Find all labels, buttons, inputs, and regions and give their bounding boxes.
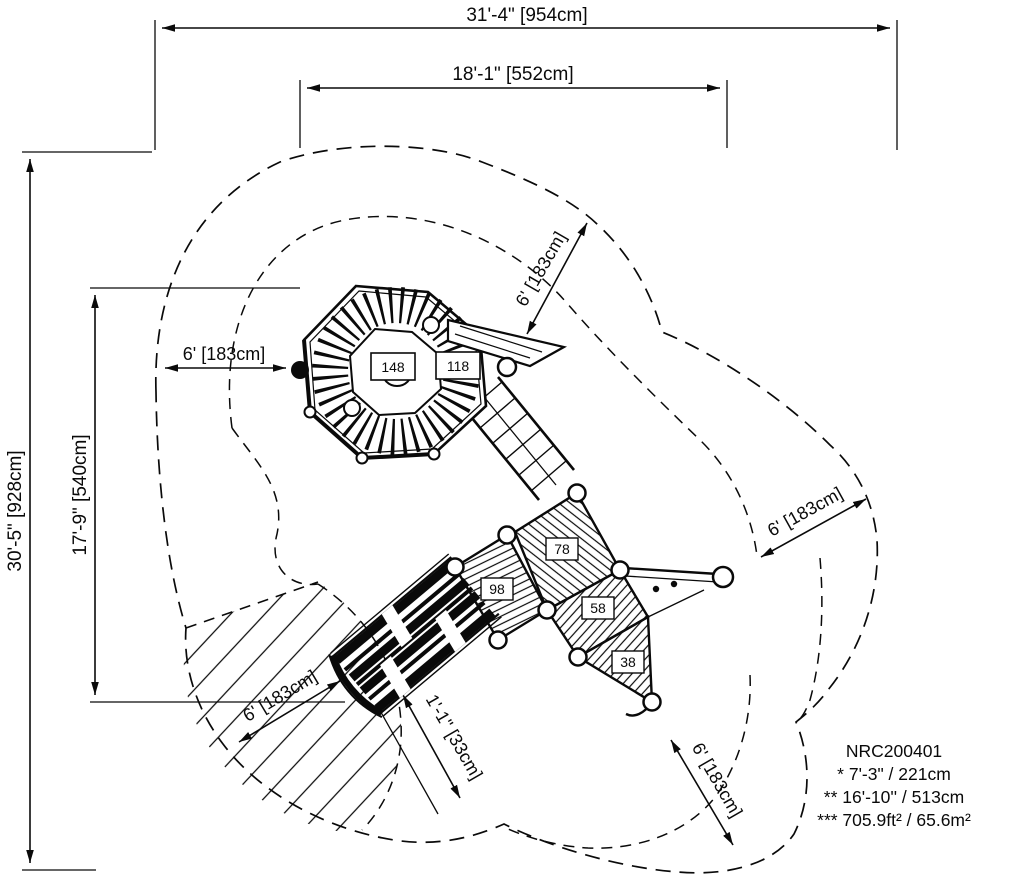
info-block: NRC200401 * 7'-3" / 221cm ** 16'-10'' / … — [776, 740, 1012, 832]
svg-text:78: 78 — [554, 541, 570, 557]
svg-text:98: 98 — [489, 581, 505, 597]
dimension-use-zone-bottom: 6' [183cm] — [671, 739, 746, 845]
overall-width-label: 31'-4" [954cm] — [466, 5, 587, 26]
dimension-use-zone-right: 6' [183cm] — [761, 483, 866, 557]
use-zone-left-label: 6' [183cm] — [183, 344, 265, 364]
use-zone-bottom-label: 6' [183cm] — [688, 739, 747, 820]
inner-zone-arc-right — [795, 558, 822, 722]
playground-plan-drawing: 31'-4" [954cm] 18'-1" [552cm] 30'-5" [92… — [0, 0, 1024, 884]
inner-zone-arc-left — [232, 428, 318, 585]
svg-text:148: 148 — [381, 359, 405, 375]
note-overall-height: ** 16'-10'' / 513cm — [776, 786, 1012, 809]
dimension-slide-exit: 1'-1" [33cm] — [403, 691, 487, 798]
ball-finial-post — [713, 567, 733, 587]
overall-height-label: 30'-5" [928cm] — [5, 450, 26, 571]
svg-text:118: 118 — [447, 358, 470, 374]
deck-height-label-58: 58 — [582, 597, 614, 619]
dimension-overall-width: 31'-4" [954cm] — [162, 5, 890, 28]
deck-height-label-118: 118 — [436, 352, 480, 379]
deck-height-label-78: 78 — [546, 538, 578, 560]
dimension-play-height: 17'-9" [540cm] — [70, 295, 95, 695]
svg-text:58: 58 — [590, 600, 606, 616]
play-height-label: 17'-9" [540cm] — [70, 434, 91, 555]
deck-height-label-148: 148 — [371, 353, 415, 380]
dimension-play-width: 18'-1" [552cm] — [307, 64, 720, 88]
svg-text:38: 38 — [620, 654, 636, 670]
model-number: NRC200401 — [776, 740, 1012, 763]
play-width-label: 18'-1" [552cm] — [452, 64, 573, 85]
deck-height-label-38: 38 — [612, 651, 644, 673]
slide-exit-label: 1'-1" [33cm] — [422, 691, 487, 783]
dimension-use-zone-top-right: 6' [183cm] — [512, 223, 587, 334]
steering-knob — [291, 361, 309, 379]
dimension-overall-height: 30'-5" [928cm] — [5, 159, 30, 863]
deck-height-label-98: 98 — [481, 578, 513, 600]
note-fall-height: * 7'-3" / 221cm — [776, 763, 1012, 786]
dimension-use-zone-left: 6' [183cm] — [165, 344, 286, 368]
note-area: *** 705.9ft² / 65.6m² — [776, 809, 1012, 832]
